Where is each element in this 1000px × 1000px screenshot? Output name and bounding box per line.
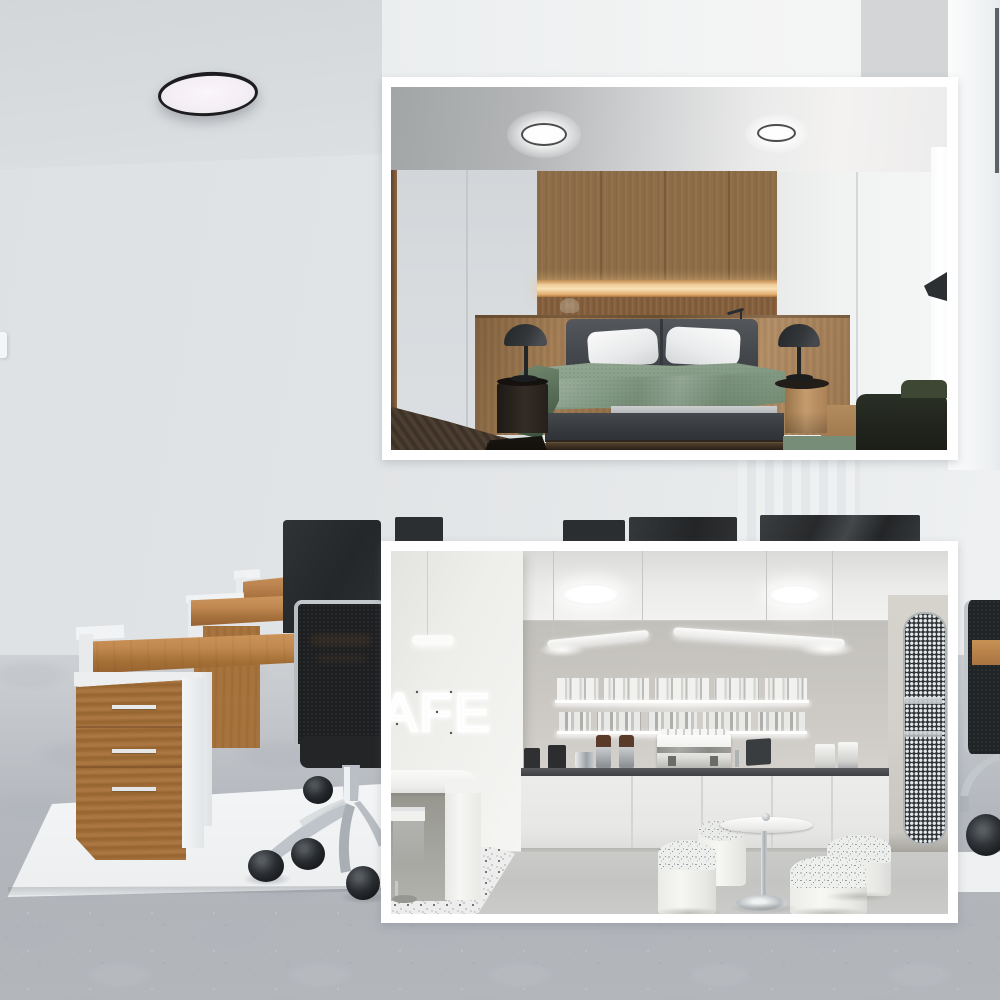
svg-text:AFE: AFE [391, 683, 492, 743]
